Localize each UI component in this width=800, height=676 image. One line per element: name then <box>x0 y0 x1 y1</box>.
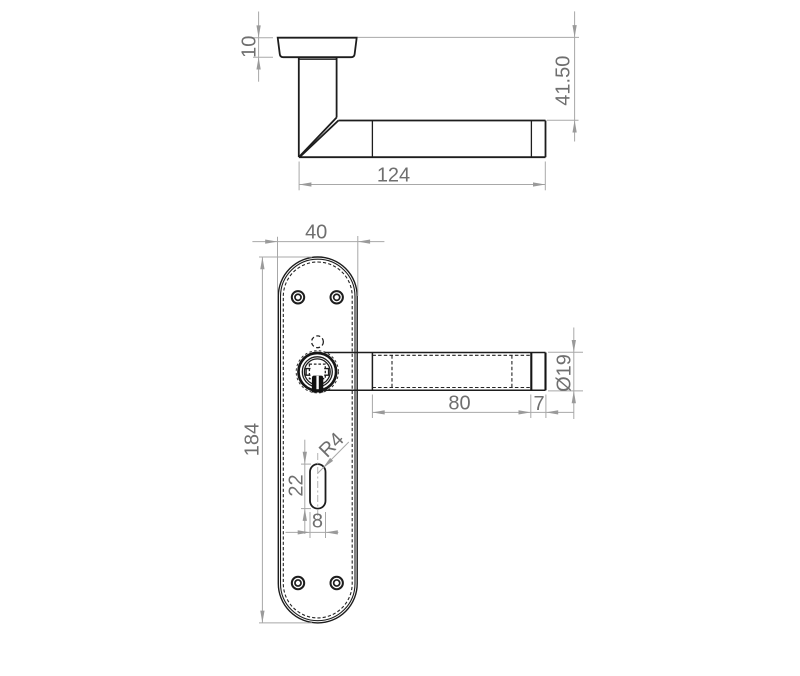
svg-text:80: 80 <box>448 392 470 414</box>
svg-text:41.50: 41.50 <box>552 56 574 106</box>
svg-text:Ø19: Ø19 <box>553 354 575 392</box>
svg-text:22: 22 <box>285 474 307 496</box>
svg-text:7: 7 <box>533 393 544 415</box>
svg-text:40: 40 <box>305 221 327 243</box>
svg-text:8: 8 <box>312 511 323 533</box>
svg-text:R4: R4 <box>315 428 349 462</box>
svg-text:124: 124 <box>377 164 410 186</box>
svg-text:10: 10 <box>239 36 261 58</box>
svg-text:184: 184 <box>242 423 264 456</box>
